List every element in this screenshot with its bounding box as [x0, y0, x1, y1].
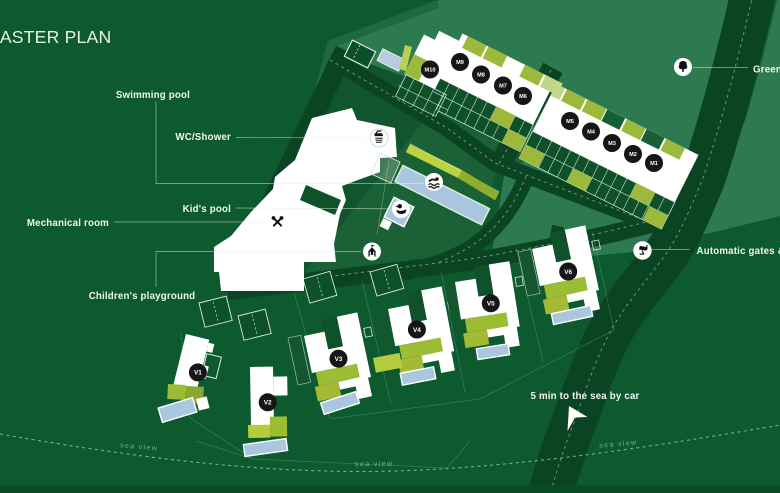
- svg-text:V4: V4: [413, 327, 421, 334]
- svg-text:M8: M8: [477, 73, 485, 79]
- svg-text:Mechanical room: Mechanical room: [27, 218, 109, 229]
- svg-text:V1: V1: [194, 370, 202, 377]
- svg-text:M3: M3: [608, 141, 616, 147]
- svg-text:V3: V3: [335, 356, 343, 363]
- svg-text:Swimming pool: Swimming pool: [116, 90, 190, 101]
- svg-text:sea view: sea view: [355, 459, 394, 469]
- svg-text:Automatic gates & video survei: Automatic gates & video surveillance: [697, 246, 780, 257]
- svg-text:5 min to the sea by car: 5 min to the sea by car: [530, 391, 639, 402]
- svg-text:M5: M5: [566, 119, 574, 125]
- svg-text:Kid's pool: Kid's pool: [183, 204, 231, 215]
- svg-text:Children's playground: Children's playground: [89, 291, 196, 302]
- svg-text:M2: M2: [629, 152, 637, 158]
- svg-text:V6: V6: [564, 269, 572, 276]
- svg-text:M10: M10: [425, 68, 436, 74]
- svg-text:WC/Shower: WC/Shower: [175, 132, 231, 143]
- svg-text:M9: M9: [456, 60, 464, 66]
- svg-text:M4: M4: [587, 130, 596, 136]
- svg-text:V5: V5: [487, 301, 495, 308]
- svg-text:MASTER PLAN: MASTER PLAN: [0, 27, 111, 47]
- svg-text:M6: M6: [519, 94, 527, 100]
- svg-text:V2: V2: [264, 400, 272, 407]
- svg-text:M7: M7: [499, 84, 507, 90]
- svg-text:M1: M1: [650, 161, 658, 167]
- svg-text:Greenery zone: Greenery zone: [753, 65, 780, 76]
